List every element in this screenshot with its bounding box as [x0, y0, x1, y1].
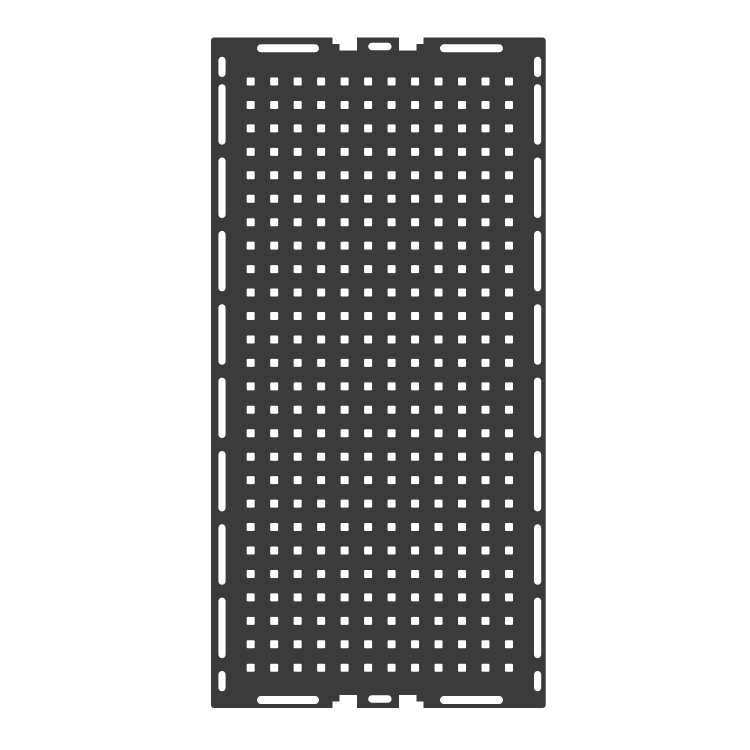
- grid-hole: [247, 406, 255, 414]
- grid-hole: [317, 500, 325, 508]
- grid-hole: [482, 335, 490, 343]
- grid-hole: [270, 242, 278, 250]
- grid-hole: [270, 101, 278, 109]
- grid-hole: [435, 171, 443, 179]
- grid-hole: [294, 617, 302, 625]
- grid-hole: [341, 218, 349, 226]
- grid-hole: [247, 547, 255, 555]
- grid-hole: [435, 476, 443, 484]
- right-edge-slot-long: [534, 598, 541, 659]
- grid-hole: [458, 664, 466, 672]
- grid-hole: [388, 101, 396, 109]
- grid-hole: [388, 406, 396, 414]
- grid-hole: [317, 523, 325, 531]
- grid-hole: [270, 523, 278, 531]
- grid-hole: [364, 195, 372, 203]
- grid-hole: [294, 640, 302, 648]
- grid-hole: [411, 78, 419, 86]
- grid-hole: [341, 476, 349, 484]
- grid-hole: [458, 453, 466, 461]
- grid-hole: [270, 429, 278, 437]
- left-edge-slot-long: [218, 231, 225, 292]
- grid-hole: [294, 453, 302, 461]
- grid-hole: [364, 617, 372, 625]
- bottom-edge-notch: [399, 695, 417, 710]
- grid-hole: [270, 406, 278, 414]
- left-edge-slot-long: [218, 158, 225, 219]
- grid-hole: [247, 429, 255, 437]
- left-edge-slot-long: [218, 84, 225, 145]
- grid-hole: [270, 265, 278, 273]
- grid-hole: [505, 242, 513, 250]
- grid-hole: [458, 195, 466, 203]
- grid-hole: [458, 429, 466, 437]
- grid-hole: [435, 78, 443, 86]
- grid-hole: [317, 617, 325, 625]
- grid-hole: [270, 453, 278, 461]
- right-edge-slot-short-bottom: [534, 671, 541, 691]
- grid-hole: [388, 640, 396, 648]
- grid-hole: [341, 382, 349, 390]
- right-edge-slot-long: [534, 378, 541, 439]
- grid-hole: [505, 359, 513, 367]
- grid-hole: [411, 289, 419, 297]
- grid-hole: [270, 171, 278, 179]
- grid-hole: [388, 312, 396, 320]
- grid-hole: [458, 218, 466, 226]
- grid-hole: [411, 148, 419, 156]
- grid-hole: [341, 453, 349, 461]
- grid-hole: [435, 289, 443, 297]
- grid-hole: [411, 171, 419, 179]
- grid-hole: [435, 523, 443, 531]
- grid-hole: [482, 500, 490, 508]
- grid-hole: [388, 476, 396, 484]
- grid-hole: [341, 312, 349, 320]
- grid-hole: [482, 195, 490, 203]
- grid-hole: [388, 523, 396, 531]
- grid-hole: [482, 312, 490, 320]
- grid-hole: [458, 523, 466, 531]
- left-edge-slot-long: [218, 304, 225, 365]
- top-center-pill-slot: [368, 43, 391, 51]
- grid-hole: [505, 101, 513, 109]
- grid-hole: [388, 218, 396, 226]
- grid-hole: [364, 547, 372, 555]
- grid-hole: [270, 500, 278, 508]
- grid-hole: [482, 429, 490, 437]
- grid-hole: [317, 124, 325, 132]
- grid-hole: [411, 265, 419, 273]
- grid-hole: [458, 171, 466, 179]
- grid-hole: [247, 640, 255, 648]
- grid-hole: [411, 593, 419, 601]
- grid-hole: [505, 78, 513, 86]
- grid-hole: [482, 570, 490, 578]
- grid-hole: [411, 406, 419, 414]
- grid-hole: [388, 124, 396, 132]
- grid-hole: [482, 78, 490, 86]
- grid-hole: [247, 195, 255, 203]
- grid-hole: [505, 570, 513, 578]
- grid-hole: [247, 523, 255, 531]
- grid-hole: [411, 500, 419, 508]
- grid-hole: [341, 242, 349, 250]
- grid-hole: [317, 171, 325, 179]
- left-edge-slot-long: [218, 451, 225, 512]
- right-edge-slot-long: [534, 158, 541, 219]
- grid-hole: [458, 265, 466, 273]
- grid-hole: [388, 453, 396, 461]
- grid-hole: [247, 242, 255, 250]
- grid-hole: [435, 664, 443, 672]
- grid-hole: [505, 171, 513, 179]
- grid-hole: [411, 195, 419, 203]
- grid-hole: [435, 242, 443, 250]
- grid-hole: [435, 570, 443, 578]
- bottom-edge-notch: [340, 695, 358, 710]
- grid-hole: [364, 148, 372, 156]
- grid-hole: [364, 523, 372, 531]
- grid-hole: [341, 570, 349, 578]
- left-edge-slot-short-bottom: [218, 671, 225, 691]
- grid-hole: [364, 453, 372, 461]
- grid-hole: [435, 382, 443, 390]
- grid-hole: [505, 500, 513, 508]
- grid-hole: [317, 359, 325, 367]
- grid-hole: [411, 359, 419, 367]
- grid-hole: [458, 476, 466, 484]
- grid-hole: [341, 429, 349, 437]
- grid-hole: [435, 148, 443, 156]
- plate-body: [211, 38, 546, 709]
- grid-hole: [341, 547, 349, 555]
- left-edge-slot-long: [218, 598, 225, 659]
- grid-hole: [482, 171, 490, 179]
- grid-hole: [294, 523, 302, 531]
- grid-hole: [411, 124, 419, 132]
- grid-hole: [505, 617, 513, 625]
- grid-hole: [458, 242, 466, 250]
- grid-hole: [482, 476, 490, 484]
- grid-hole: [364, 171, 372, 179]
- grid-hole: [411, 617, 419, 625]
- grid-hole: [294, 476, 302, 484]
- grid-hole: [317, 335, 325, 343]
- grid-hole: [294, 429, 302, 437]
- grid-hole: [411, 547, 419, 555]
- grid-hole: [270, 382, 278, 390]
- grid-hole: [435, 359, 443, 367]
- grid-hole: [388, 382, 396, 390]
- grid-hole: [435, 453, 443, 461]
- grid-hole: [341, 359, 349, 367]
- grid-hole: [458, 359, 466, 367]
- grid-hole: [294, 218, 302, 226]
- grid-hole: [388, 265, 396, 273]
- grid-hole: [247, 218, 255, 226]
- right-edge-slot-long: [534, 304, 541, 365]
- top-edge-notch: [399, 36, 417, 51]
- grid-hole: [364, 476, 372, 484]
- grid-hole: [411, 312, 419, 320]
- grid-hole: [411, 101, 419, 109]
- grid-hole: [505, 453, 513, 461]
- grid-hole: [270, 359, 278, 367]
- grid-hole: [364, 312, 372, 320]
- grid-hole: [388, 289, 396, 297]
- grid-hole: [294, 359, 302, 367]
- grid-hole: [482, 640, 490, 648]
- grid-hole: [247, 453, 255, 461]
- grid-hole: [270, 124, 278, 132]
- grid-hole: [317, 195, 325, 203]
- grid-hole: [341, 593, 349, 601]
- grid-hole: [294, 171, 302, 179]
- grid-hole: [505, 476, 513, 484]
- grid-hole: [388, 500, 396, 508]
- grid-hole: [294, 500, 302, 508]
- grid-hole: [364, 429, 372, 437]
- grid-hole: [317, 78, 325, 86]
- grid-hole: [270, 664, 278, 672]
- grid-hole: [341, 664, 349, 672]
- grid-hole: [411, 382, 419, 390]
- grid-hole: [411, 570, 419, 578]
- grid-hole: [458, 500, 466, 508]
- grid-hole: [270, 78, 278, 86]
- grid-hole: [341, 78, 349, 86]
- right-edge-slot-long: [534, 231, 541, 292]
- grid-hole: [270, 335, 278, 343]
- grid-hole: [458, 312, 466, 320]
- grid-hole: [364, 78, 372, 86]
- grid-hole: [388, 429, 396, 437]
- grid-hole: [317, 382, 325, 390]
- grid-hole: [317, 640, 325, 648]
- grid-hole: [388, 570, 396, 578]
- grid-hole: [317, 453, 325, 461]
- grid-hole: [505, 429, 513, 437]
- grid-hole: [482, 101, 490, 109]
- grid-hole: [247, 124, 255, 132]
- grid-hole: [247, 289, 255, 297]
- grid-hole: [270, 218, 278, 226]
- grid-hole: [388, 617, 396, 625]
- grid-hole: [388, 242, 396, 250]
- grid-hole: [317, 547, 325, 555]
- grid-hole: [294, 265, 302, 273]
- grid-hole: [505, 148, 513, 156]
- grid-hole: [341, 195, 349, 203]
- grid-hole: [411, 335, 419, 343]
- grid-hole: [364, 359, 372, 367]
- grid-hole: [505, 406, 513, 414]
- grid-hole: [247, 171, 255, 179]
- grid-hole: [270, 640, 278, 648]
- top-right-pill-slot: [440, 44, 503, 52]
- grid-hole: [458, 382, 466, 390]
- grid-hole: [247, 664, 255, 672]
- grid-hole: [364, 570, 372, 578]
- grid-hole: [341, 265, 349, 273]
- grid-hole: [482, 359, 490, 367]
- grid-hole: [388, 78, 396, 86]
- grid-hole: [341, 617, 349, 625]
- grid-hole: [364, 664, 372, 672]
- grid-hole: [364, 593, 372, 601]
- grid-hole: [458, 289, 466, 297]
- grid-hole: [247, 476, 255, 484]
- grid-hole: [458, 78, 466, 86]
- left-edge-slot-long: [218, 524, 225, 585]
- grid-hole: [505, 547, 513, 555]
- grid-hole: [505, 195, 513, 203]
- grid-hole: [247, 265, 255, 273]
- grid-hole: [294, 78, 302, 86]
- grid-hole: [435, 406, 443, 414]
- top-edge-recess: [333, 32, 340, 45]
- grid-hole: [270, 476, 278, 484]
- grid-hole: [505, 335, 513, 343]
- grid-hole: [388, 335, 396, 343]
- grid-hole: [388, 664, 396, 672]
- grid-hole: [247, 312, 255, 320]
- grid-hole: [247, 101, 255, 109]
- grid-hole: [317, 218, 325, 226]
- grid-hole: [317, 664, 325, 672]
- grid-hole: [294, 406, 302, 414]
- grid-hole: [482, 547, 490, 555]
- grid-hole: [294, 335, 302, 343]
- grid-hole: [364, 289, 372, 297]
- grid-hole: [411, 218, 419, 226]
- grid-hole: [388, 593, 396, 601]
- grid-hole: [247, 359, 255, 367]
- grid-hole: [270, 312, 278, 320]
- grid-hole: [505, 523, 513, 531]
- grid-hole: [294, 289, 302, 297]
- grid-hole: [435, 265, 443, 273]
- grid-hole: [482, 242, 490, 250]
- grid-hole: [411, 453, 419, 461]
- grid-hole: [317, 242, 325, 250]
- grid-hole: [482, 523, 490, 531]
- grid-hole: [411, 523, 419, 531]
- grid-hole: [317, 570, 325, 578]
- grid-hole: [247, 382, 255, 390]
- grid-hole: [411, 664, 419, 672]
- grid-hole: [435, 593, 443, 601]
- grid-hole: [411, 476, 419, 484]
- grid-hole: [270, 289, 278, 297]
- grid-hole: [364, 382, 372, 390]
- grid-hole: [270, 195, 278, 203]
- grid-hole: [247, 500, 255, 508]
- bottom-right-pill-slot: [440, 696, 503, 704]
- grid-hole: [270, 570, 278, 578]
- grid-hole: [458, 617, 466, 625]
- grid-hole: [482, 617, 490, 625]
- grid-hole: [505, 124, 513, 132]
- grid-hole: [482, 289, 490, 297]
- top-edge-notch: [340, 36, 358, 51]
- left-edge-slot-short-top: [218, 57, 225, 77]
- grid-hole: [505, 664, 513, 672]
- grid-hole: [294, 570, 302, 578]
- left-edge-slot-long: [218, 378, 225, 439]
- right-edge-slot-long: [534, 451, 541, 512]
- grid-hole: [505, 265, 513, 273]
- grid-hole: [294, 101, 302, 109]
- grid-hole: [341, 335, 349, 343]
- grid-hole: [435, 500, 443, 508]
- grid-hole: [294, 312, 302, 320]
- grid-hole: [341, 171, 349, 179]
- grid-hole: [458, 335, 466, 343]
- grid-hole: [270, 148, 278, 156]
- grid-hole: [411, 429, 419, 437]
- bottom-left-pill-slot: [257, 696, 319, 704]
- top-edge-recess: [417, 32, 424, 45]
- grid-hole: [505, 640, 513, 648]
- grid-hole: [294, 195, 302, 203]
- grid-hole: [505, 593, 513, 601]
- grid-hole: [435, 429, 443, 437]
- grid-hole: [482, 382, 490, 390]
- right-edge-slot-long: [534, 84, 541, 145]
- grid-hole: [364, 101, 372, 109]
- grid-hole: [435, 101, 443, 109]
- grid-hole: [294, 382, 302, 390]
- grid-hole: [294, 664, 302, 672]
- grid-hole: [317, 593, 325, 601]
- grid-hole: [317, 265, 325, 273]
- grid-hole: [388, 171, 396, 179]
- grid-hole: [388, 547, 396, 555]
- grid-hole: [435, 617, 443, 625]
- grid-hole: [364, 218, 372, 226]
- grid-hole: [505, 218, 513, 226]
- grid-hole: [482, 265, 490, 273]
- grid-hole: [270, 547, 278, 555]
- grid-hole: [341, 500, 349, 508]
- grid-hole: [317, 429, 325, 437]
- grid-hole: [341, 101, 349, 109]
- grid-hole: [458, 406, 466, 414]
- grid-hole: [388, 148, 396, 156]
- grid-hole: [317, 476, 325, 484]
- perforated-plate-drawing: [0, 0, 750, 750]
- right-edge-slot-short-top: [534, 57, 541, 77]
- grid-hole: [294, 547, 302, 555]
- bottom-center-pill-slot: [368, 695, 391, 703]
- grid-hole: [482, 453, 490, 461]
- grid-hole: [458, 148, 466, 156]
- grid-hole: [317, 289, 325, 297]
- grid-hole: [364, 242, 372, 250]
- grid-hole: [435, 547, 443, 555]
- grid-hole: [435, 312, 443, 320]
- grid-hole: [458, 547, 466, 555]
- grid-hole: [317, 148, 325, 156]
- grid-hole: [364, 335, 372, 343]
- grid-hole: [341, 406, 349, 414]
- grid-hole: [458, 124, 466, 132]
- grid-hole: [482, 124, 490, 132]
- grid-hole: [435, 335, 443, 343]
- grid-hole: [247, 148, 255, 156]
